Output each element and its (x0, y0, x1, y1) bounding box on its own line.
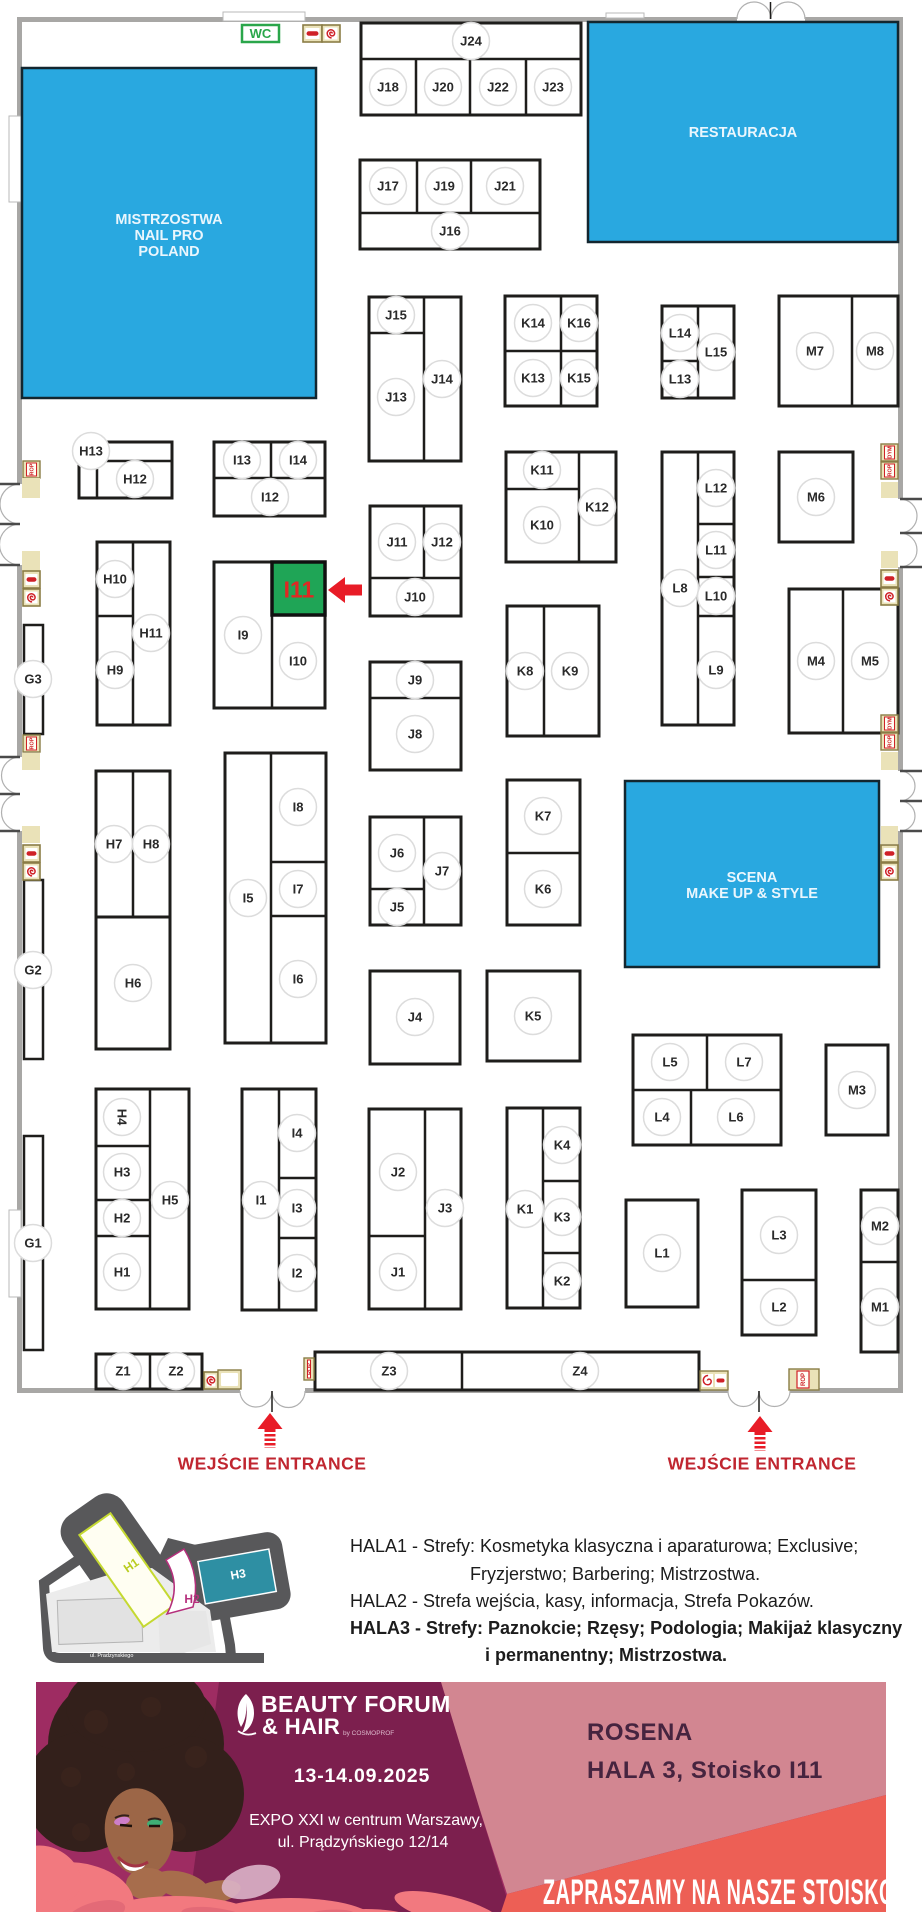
svg-text:J17: J17 (377, 179, 399, 194)
svg-text:L6: L6 (728, 1110, 743, 1125)
svg-text:J18: J18 (377, 80, 399, 95)
svg-text:M1: M1 (871, 1300, 889, 1315)
svg-text:J15: J15 (385, 308, 407, 323)
svg-text:H3: H3 (229, 1566, 247, 1583)
svg-text:SCENA: SCENA (727, 870, 778, 886)
svg-text:ROP: ROP (887, 464, 893, 476)
svg-text:K12: K12 (585, 500, 609, 515)
svg-text:J2: J2 (391, 1165, 405, 1180)
svg-text:L8: L8 (672, 581, 687, 596)
svg-text:J1: J1 (391, 1265, 405, 1280)
svg-text:J24: J24 (460, 34, 482, 49)
svg-text:J5: J5 (390, 900, 404, 915)
svg-text:K6: K6 (535, 882, 552, 897)
svg-text:K15: K15 (567, 371, 591, 386)
svg-text:J16: J16 (439, 224, 461, 239)
svg-text:L14: L14 (669, 326, 692, 341)
svg-text:J9: J9 (408, 673, 422, 688)
svg-text:Z4: Z4 (572, 1364, 588, 1379)
svg-text:13-14.09.2025: 13-14.09.2025 (294, 1765, 430, 1787)
svg-text:RESTAURACJA: RESTAURACJA (689, 125, 798, 141)
svg-text:HALA 3, Stoisko I11: HALA 3, Stoisko I11 (587, 1757, 823, 1784)
svg-text:K8: K8 (517, 664, 534, 679)
svg-text:ZAPRASZAMY NA NASZE STOISKO!: ZAPRASZAMY NA NASZE STOISKO! (543, 1873, 886, 1912)
svg-text:L3: L3 (771, 1228, 786, 1243)
svg-text:J12: J12 (431, 535, 453, 550)
svg-text:J7: J7 (435, 864, 449, 879)
svg-text:DYM: DYM (887, 446, 893, 459)
svg-text:Z3: Z3 (381, 1364, 396, 1379)
svg-text:J21: J21 (494, 179, 516, 194)
svg-text:by COSMOPROF: by COSMOPROF (343, 1730, 394, 1737)
svg-text:ul. Prądzyńskiego 12/14: ul. Prądzyńskiego 12/14 (278, 1834, 449, 1851)
svg-text:K14: K14 (521, 316, 546, 331)
svg-text:J8: J8 (408, 727, 422, 742)
svg-text:L9: L9 (708, 663, 723, 678)
svg-text:H2: H2 (184, 1592, 200, 1606)
svg-text:M6: M6 (807, 490, 825, 505)
svg-text:L11: L11 (705, 543, 727, 558)
svg-text:K16: K16 (567, 316, 591, 331)
svg-text:DYM: DYM (887, 717, 893, 730)
svg-text:K7: K7 (535, 809, 552, 824)
svg-text:M5: M5 (861, 654, 879, 669)
svg-text:L4: L4 (654, 1110, 670, 1125)
svg-text:ROSENA: ROSENA (587, 1719, 693, 1746)
svg-text:M8: M8 (866, 344, 884, 359)
svg-text:ROP: ROP (887, 735, 893, 747)
svg-text:J6: J6 (390, 846, 404, 861)
svg-text:L1: L1 (654, 1246, 669, 1261)
svg-text:L7: L7 (736, 1055, 751, 1070)
svg-text:K10: K10 (530, 518, 554, 533)
svg-text:K11: K11 (530, 463, 553, 478)
svg-text:L5: L5 (662, 1055, 677, 1070)
svg-text:ROP: ROP (801, 1373, 807, 1386)
svg-text:L15: L15 (705, 345, 727, 360)
svg-text:K13: K13 (521, 371, 545, 386)
svg-text:K9: K9 (562, 664, 579, 679)
svg-text:J4: J4 (408, 1010, 423, 1025)
svg-text:& HAIR: & HAIR (262, 1714, 340, 1739)
svg-text:J14: J14 (431, 372, 453, 387)
svg-text:ul. Pradzynskiego: ul. Pradzynskiego (90, 1653, 133, 1659)
svg-text:K3: K3 (554, 1210, 571, 1225)
svg-text:L13: L13 (669, 372, 691, 387)
svg-text:M3: M3 (848, 1083, 866, 1098)
svg-text:M4: M4 (807, 654, 826, 669)
svg-text:L10: L10 (705, 589, 727, 604)
svg-text:K1: K1 (517, 1202, 534, 1217)
svg-text:M7: M7 (806, 344, 824, 359)
svg-text:J20: J20 (432, 80, 454, 95)
svg-text:MAKE UP & STYLE: MAKE UP & STYLE (686, 886, 818, 902)
svg-text:K4: K4 (554, 1138, 571, 1153)
svg-text:M2: M2 (871, 1219, 889, 1234)
svg-text:J19: J19 (433, 179, 455, 194)
svg-text:K5: K5 (525, 1009, 542, 1024)
svg-text:K2: K2 (554, 1274, 571, 1289)
svg-text:J13: J13 (385, 390, 407, 405)
svg-text:J22: J22 (487, 80, 509, 95)
svg-text:J11: J11 (387, 535, 408, 550)
svg-text:J10: J10 (404, 590, 426, 605)
svg-text:EXPO XXI w centrum Warszawy,: EXPO XXI w centrum Warszawy, (249, 1812, 483, 1829)
svg-text:L2: L2 (771, 1300, 786, 1315)
svg-text:J23: J23 (542, 80, 564, 95)
svg-text:J3: J3 (438, 1201, 452, 1216)
svg-text:WEJŚCIE ENTRANCE: WEJŚCIE ENTRANCE (668, 1452, 857, 1473)
svg-text:L12: L12 (705, 481, 727, 496)
